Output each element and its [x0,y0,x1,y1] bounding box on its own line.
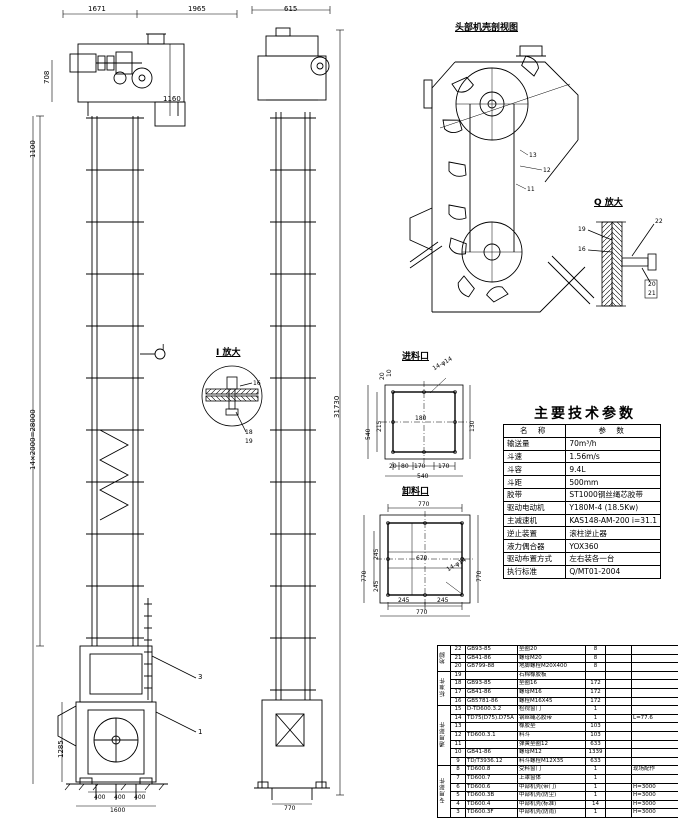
dim-label: 245 [374,549,380,560]
bom-cell: 22 [451,646,466,655]
param-cell: 驱动电动机 [504,501,566,514]
bom-cell [606,714,632,723]
bom-cell: 1 [586,783,606,792]
bom-cell: 橡胶垫 [518,723,586,732]
bom-cell: TD75(D75).D75A [466,714,518,723]
bom-cell [466,723,518,732]
bom-cell [606,731,632,740]
bom-cell: 16 [451,697,466,706]
bom-cell: 4 [451,800,466,809]
dim-label: 16 [253,381,261,387]
bom-cell [606,800,632,809]
bom-cell: GB41-86 [466,688,518,697]
bom-cell [606,749,632,758]
dim-label: 22 [655,219,663,225]
bom-cell: H=3000 [632,800,678,809]
bom-cell [632,646,678,655]
bom-cell: H=3000 [632,783,678,792]
bom-row: 18GB93-85垫圈16172 [438,680,678,689]
dim-label: 400 [134,795,145,801]
bom-cell: TD/T3936.12 [466,757,518,766]
dim-label: 170 [438,464,449,470]
params-table: 名 称参 数输送量70m³/h斗速1.56m/s斗容9.4L斗距500mm胶带S… [503,424,661,579]
bom-row: 地脚22GB93-85垫圈208 [438,646,678,655]
bom-row: 14TD75(D75).D75A钢丝绳芯胶带1L=77.6 [438,714,678,723]
bom-cell: 地脚螺栓M20X400 [518,663,586,672]
param-cell: 逆止装置 [504,527,566,540]
bom-cell: 9 [451,757,466,766]
bom-cell [632,749,678,758]
bom-cell: 8 [451,766,466,775]
param-row: 斗速1.56m/s [504,450,661,463]
bom-cell: 中部机壳(带门) [518,783,586,792]
bom-cell [606,757,632,766]
bom-group-label: 地脚 [438,646,451,672]
bom-cell: 1 [586,809,606,818]
bom-row: 17GB41-86螺母M16172 [438,688,678,697]
bom-cell: 12 [451,731,466,740]
dim-label: 20 [648,282,656,288]
bom-cell [466,740,518,749]
bom-cell: 10 [451,749,466,758]
param-cell: 500mm [566,476,661,489]
dim-label: 头部机壳剖视图 [455,24,518,33]
param-row: 主减速机KAS148-AM-200 i=31.1 [504,514,661,527]
bom-panel: 地脚22GB93-85垫圈20821GB41-86螺母M20820GB799-8… [437,645,678,818]
bom-cell: 103 [586,723,606,732]
dim-label: 770 [362,571,368,582]
bom-row: 9TD/T3936.12料斗螺栓M12X35633 [438,757,678,766]
dim-label: 770 [284,806,295,812]
dim-label: 80 [401,464,409,470]
bom-cell: GB799-88 [466,663,518,672]
bom-cell: 172 [586,680,606,689]
bom-row: 标准件19石棉橡胶板 [438,671,678,680]
bom-cell [466,671,518,680]
bom-row: 5TD600.3B中部机壳(防尘)1H=3000 [438,792,678,801]
bom-cell: 螺母M12 [518,749,586,758]
param-row: 液力偶合器YOX360 [504,540,661,553]
dim-label: 16 [578,247,586,253]
bom-cell: 11 [451,740,466,749]
bom-cell: 受料窗门 [518,766,586,775]
bom-cell: 20 [451,663,466,672]
dim-label: 770 [418,502,429,508]
bom-cell: 弹簧垫圈12 [518,740,586,749]
drawing-sheet: 167119656157081160110014×2000=2800031730… [0,0,678,822]
bom-cell [606,740,632,749]
bom-cell [606,688,632,697]
bom-cell: GB41-86 [466,654,518,663]
bom-cell [606,663,632,672]
dim-label: 14×2000=28000 [30,409,37,470]
bom-cell: 检视窗门 [518,706,586,715]
bom-cell: 1 [586,706,606,715]
dim-label: 21 [648,291,656,297]
bom-cell: TD600.6 [466,783,518,792]
bom-cell [606,671,632,680]
dim-label: 400 [114,795,125,801]
param-cell: 参 数 [566,425,661,438]
bom-cell: TD600.4 [466,800,518,809]
dim-label: 11 [527,187,535,193]
bom-row: 6TD600.6中部机壳(带门)1H=3000 [438,783,678,792]
param-cell: YOX360 [566,540,661,553]
bom-cell: 103 [586,731,606,740]
bom-cell: 18 [451,680,466,689]
bom-group-label: 专用部件 [438,766,451,818]
bom-cell: TD600.3F [466,809,518,818]
dim-label: 1 [198,729,202,736]
bom-cell: 料斗螺栓M12X35 [518,757,586,766]
detail-i-view [202,366,262,432]
bom-cell: 螺母M16 [518,688,586,697]
tech-params-panel: 名 称参 数输送量70m³/h斗速1.56m/s斗容9.4L斗距500mm胶带S… [503,424,661,579]
bom-cell [632,680,678,689]
param-cell: 滚柱逆止器 [566,527,661,540]
param-row: 驱动布置方式左右装各一台 [504,552,661,565]
front-view [33,10,237,806]
bom-cell: 8 [586,654,606,663]
bom-row: 16GB5781-86螺栓M16X45172 [438,697,678,706]
bom-cell: 料斗 [518,731,586,740]
param-cell: 斗速 [504,450,566,463]
bom-row: 11弹簧垫圈12633 [438,740,678,749]
bom-cell: 14 [586,800,606,809]
dim-label: 170 [414,464,425,470]
param-cell: 左右装各一台 [566,552,661,565]
bom-row: 7TD600.7上罩窗体1 [438,774,678,783]
bom-row: 4TD600.4中部机壳(标准)14H=3000 [438,800,678,809]
bom-cell: 中部机壳(标准) [518,800,586,809]
bom-cell: 钢丝绳芯胶带 [518,714,586,723]
bom-cell: L=77.6 [632,714,678,723]
bom-cell: TD600.8 [466,766,518,775]
param-cell: 斗容 [504,463,566,476]
param-row: 胶带ST1000钢丝绳芯胶带 [504,488,661,501]
bom-cell: GB41-86 [466,749,518,758]
bom-cell: 14 [451,714,466,723]
bom-cell [606,697,632,706]
bom-cell [606,654,632,663]
dim-label: 540 [417,474,428,480]
dim-label: 13 [529,153,537,159]
param-cell: 胶带 [504,488,566,501]
bom-cell [632,706,678,715]
bom-cell: 17 [451,688,466,697]
param-row: 名 称参 数 [504,425,661,438]
param-row: 逆止装置滚柱逆止器 [504,527,661,540]
dim-label: 31730 [334,396,341,418]
bom-cell: 7 [451,774,466,783]
param-cell: 输送量 [504,437,566,450]
dim-label: 400 [94,795,105,801]
dim-label: 245 [437,598,448,604]
bom-cell [606,783,632,792]
bom-cell: 5 [451,792,466,801]
bom-cell [632,654,678,663]
dim-label: 1965 [188,6,206,13]
bom-cell [606,774,632,783]
dim-label: 19 [245,439,253,445]
bom-cell: 螺栓M16X45 [518,697,586,706]
dim-label: 1600 [110,808,125,814]
bom-cell [632,688,678,697]
bom-cell: 633 [586,757,606,766]
bom-table: 地脚22GB93-85垫圈20821GB41-86螺母M20820GB799-8… [437,645,678,818]
bom-cell: 1 [586,792,606,801]
bom-cell: D-TD600.3.2 [466,706,518,715]
dim-label: I [162,344,164,352]
head-detail-view [410,46,594,312]
bom-cell: H=3000 [632,792,678,801]
bom-cell [632,697,678,706]
bom-cell: 石棉橡胶板 [518,671,586,680]
dim-label: 130 [470,421,476,432]
param-row: 斗容9.4L [504,463,661,476]
bom-cell: 21 [451,654,466,663]
bom-cell: 13 [451,723,466,732]
bom-cell [632,774,678,783]
dim-label: 615 [284,6,297,13]
dim-label: 770 [416,610,427,616]
bom-cell: 15 [451,706,466,715]
bom-row: 12TD600.3.1料斗103 [438,731,678,740]
dim-label: 1160 [163,96,181,103]
bom-cell: 633 [586,740,606,749]
bom-cell [606,792,632,801]
bom-cell: 8 [586,646,606,655]
bom-row: 专用部件8TD600.8受料窗门1现场配作 [438,766,678,775]
param-row: 驱动电动机Y180M-4 (18.5Kw) [504,501,661,514]
param-cell: 9.4L [566,463,661,476]
bom-cell [606,809,632,818]
dim-label: 770 [477,571,483,582]
bom-cell: 垫圈16 [518,680,586,689]
bom-cell: 1 [586,714,606,723]
bom-cell [606,680,632,689]
bom-cell: 172 [586,697,606,706]
param-cell: 名 称 [504,425,566,438]
bom-cell [632,731,678,740]
bom-cell [606,646,632,655]
bom-row: 10GB41-86螺母M121339 [438,749,678,758]
param-row: 斗距500mm [504,476,661,489]
bom-row: 3TD600.3F中部机壳(防雨)1H=3000 [438,809,678,818]
bom-group-label: 标准件 [438,671,451,705]
dim-label: I 放大 [216,349,240,358]
bom-cell: TD600.3B [466,792,518,801]
param-row: 输送量70m³/h [504,437,661,450]
dim-label: 进料口 [402,353,429,362]
bom-cell [632,723,678,732]
dim-label: 20 [389,464,397,470]
dim-label: 10 [387,369,393,377]
bom-cell: 中部机壳(防尘) [518,792,586,801]
dim-label: Q 放大 [594,199,623,208]
dim-label: 708 [44,71,51,84]
dim-label: 540 [366,429,372,440]
param-cell: 驱动布置方式 [504,552,566,565]
bom-cell: GB93-85 [466,646,518,655]
dim-label: 3 [198,674,202,681]
inlet-flange-view [368,378,470,476]
param-cell: Q/MT01-2004 [566,565,661,578]
bom-cell: 现场配作 [632,766,678,775]
bom-cell: TD600.3.1 [466,731,518,740]
dim-label: 1100 [30,140,37,158]
dim-label: 18 [245,430,253,436]
dim-label: 245 [374,581,380,592]
bom-row: 20GB799-88地脚螺栓M20X4008 [438,663,678,672]
bom-cell [606,723,632,732]
bom-cell [632,740,678,749]
bom-cell: 8 [586,663,606,672]
bom-row: 13橡胶垫103 [438,723,678,732]
dim-label: 245 [398,598,409,604]
bom-cell [632,663,678,672]
bom-cell [586,671,606,680]
dim-label: 180 [415,416,426,422]
param-cell: 液力偶合器 [504,540,566,553]
dim-label: 卸料口 [402,488,429,497]
param-cell: Y180M-4 (18.5Kw) [566,501,661,514]
param-cell: 1.56m/s [566,450,661,463]
bom-cell: 172 [586,688,606,697]
bom-cell [632,757,678,766]
bom-row: 通用部件15D-TD600.3.2检视窗门1 [438,706,678,715]
dim-label: 12 [543,168,551,174]
bom-cell [632,671,678,680]
bom-cell: 6 [451,783,466,792]
dim-label: 215 [377,421,383,432]
param-cell: KAS148-AM-200 i=31.1 [566,514,661,527]
dim-label: 1285 [58,740,65,758]
dim-label: 670 [416,556,427,562]
bom-cell: 螺母M20 [518,654,586,663]
param-cell: 斗距 [504,476,566,489]
param-cell: 70m³/h [566,437,661,450]
bom-cell: 1 [586,766,606,775]
param-cell: ST1000钢丝绳芯胶带 [566,488,661,501]
bom-cell: 1339 [586,749,606,758]
side-view [252,6,344,804]
bom-cell: 中部机壳(防雨) [518,809,586,818]
bom-group-label: 通用部件 [438,706,451,766]
dim-label: 19 [578,227,586,233]
bom-cell [606,706,632,715]
dim-label: 1671 [88,6,106,13]
param-cell: 主减速机 [504,514,566,527]
detail-q-view [588,222,657,306]
bom-row: 21GB41-86螺母M208 [438,654,678,663]
bom-cell: 上罩窗体 [518,774,586,783]
bom-cell: GB93-85 [466,680,518,689]
bom-cell: 1 [586,774,606,783]
bom-cell: GB5781-86 [466,697,518,706]
param-cell: 执行标准 [504,565,566,578]
bom-cell: 19 [451,671,466,680]
bom-cell: H=3000 [632,809,678,818]
bom-cell [606,766,632,775]
bom-cell: 垫圈20 [518,646,586,655]
params-title: 主要技术参数 [534,403,636,423]
bom-cell: TD600.7 [466,774,518,783]
bom-cell: 3 [451,809,466,818]
param-row: 执行标准Q/MT01-2004 [504,565,661,578]
